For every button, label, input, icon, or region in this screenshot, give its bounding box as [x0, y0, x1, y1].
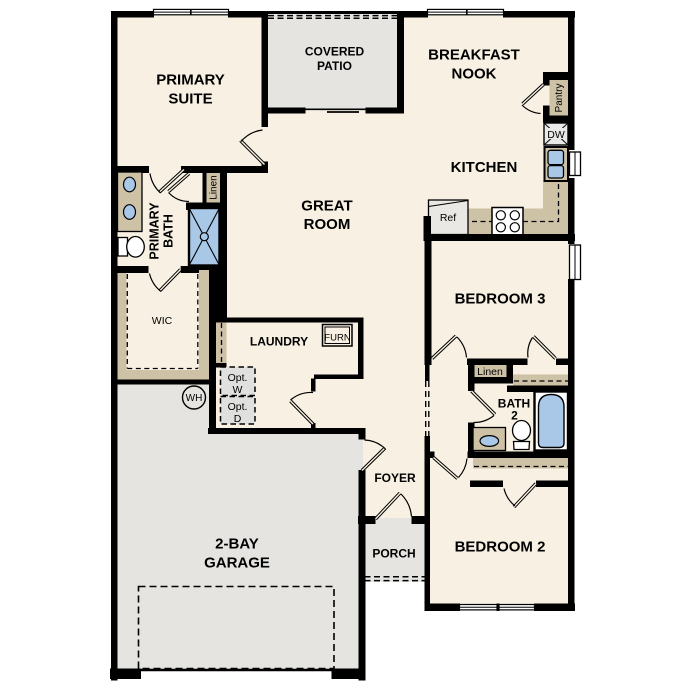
svg-text:PORCH: PORCH: [372, 547, 415, 561]
svg-text:Pantry: Pantry: [554, 84, 565, 113]
svg-text:GARAGE: GARAGE: [204, 555, 270, 572]
svg-text:ROOM: ROOM: [304, 216, 351, 233]
svg-text:LAUNDRY: LAUNDRY: [250, 335, 308, 349]
svg-text:BATH: BATH: [162, 214, 176, 248]
svg-text:KITCHEN: KITCHEN: [451, 159, 518, 176]
svg-text:PRIMARY: PRIMARY: [156, 72, 225, 89]
svg-text:Ref: Ref: [440, 212, 456, 224]
svg-text:FURN: FURN: [324, 333, 351, 344]
svg-text:Opt.: Opt.: [228, 401, 248, 413]
svg-text:Opt.: Opt.: [228, 372, 248, 384]
svg-text:Linen: Linen: [209, 175, 220, 199]
svg-text:COVERED: COVERED: [305, 45, 365, 59]
svg-text:FOYER: FOYER: [374, 471, 416, 485]
svg-text:WIC: WIC: [152, 315, 173, 327]
svg-text:BREAKFAST: BREAKFAST: [428, 47, 520, 64]
svg-text:BEDROOM 2: BEDROOM 2: [455, 539, 546, 556]
svg-text:NOOK: NOOK: [452, 66, 497, 83]
svg-text:Linen: Linen: [477, 366, 503, 378]
svg-text:W: W: [233, 384, 243, 396]
svg-text:GREAT: GREAT: [301, 198, 352, 215]
svg-text:D: D: [234, 413, 242, 425]
svg-text:DW: DW: [547, 129, 565, 141]
svg-text:2: 2: [511, 409, 518, 423]
svg-text:PRIMARY: PRIMARY: [148, 202, 162, 260]
svg-text:SUITE: SUITE: [168, 91, 212, 108]
svg-text:BEDROOM 3: BEDROOM 3: [455, 291, 546, 308]
svg-text:WH: WH: [186, 393, 203, 404]
svg-text:PATIO: PATIO: [317, 59, 352, 73]
svg-text:2-BAY: 2-BAY: [215, 536, 259, 553]
